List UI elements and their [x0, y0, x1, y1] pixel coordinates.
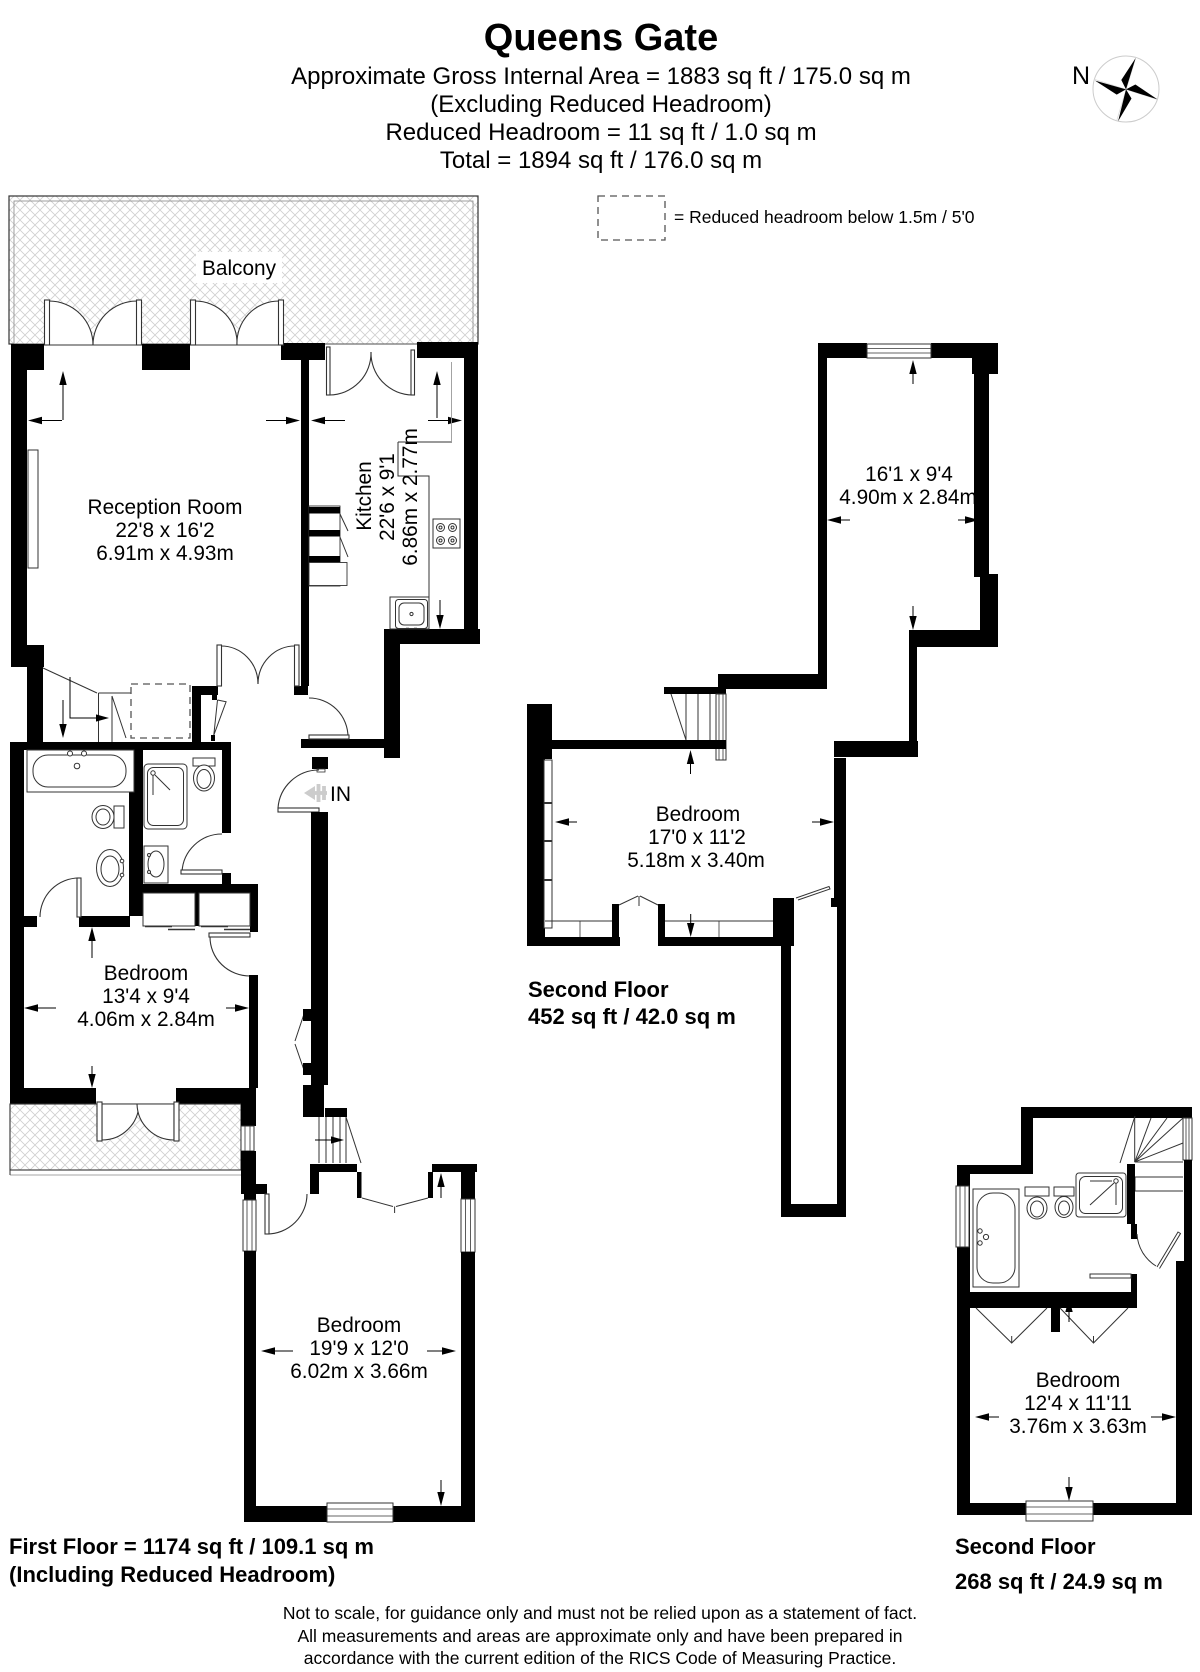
svg-text:6.02m x 3.66m: 6.02m x 3.66m — [290, 1360, 428, 1383]
svg-text:4.90m x 2.84m: 4.90m x 2.84m — [839, 486, 977, 509]
svg-text:19'9 x 12'0: 19'9 x 12'0 — [309, 1337, 408, 1360]
svg-text:4.06m x 2.84m: 4.06m x 2.84m — [77, 1008, 215, 1031]
svg-text:Approximate Gross Internal Are: Approximate Gross Internal Area = 1883 s… — [291, 63, 911, 90]
svg-text:5.18m x 3.40m: 5.18m x 3.40m — [627, 849, 765, 872]
svg-text:452 sq ft / 42.0 sq m: 452 sq ft / 42.0 sq m — [528, 1004, 736, 1029]
svg-text:268 sq ft / 24.9 sq m: 268 sq ft / 24.9 sq m — [955, 1569, 1163, 1594]
svg-text:All measurements and areas are: All measurements and areas are approxima… — [297, 1626, 902, 1646]
svg-text:22'8 x 16'2: 22'8 x 16'2 — [115, 519, 214, 542]
svg-text:6.86m x 2.77m: 6.86m x 2.77m — [399, 428, 422, 566]
svg-text:22'6 x 9'1: 22'6 x 9'1 — [376, 453, 399, 541]
svg-text:(Including Reduced Headroom): (Including Reduced Headroom) — [9, 1562, 335, 1587]
svg-text:17'0 x 11'2: 17'0 x 11'2 — [648, 826, 746, 849]
svg-text:Reception Room: Reception Room — [88, 496, 243, 519]
svg-text:Bedroom: Bedroom — [656, 803, 740, 826]
svg-text:12'4 x 11'11: 12'4 x 11'11 — [1024, 1392, 1132, 1415]
svg-text:Reduced Headroom = 11 sq ft /: Reduced Headroom = 11 sq ft / 1.0 sq m — [385, 119, 816, 146]
svg-text:(Excluding Reduced Headroom): (Excluding Reduced Headroom) — [430, 91, 772, 118]
svg-text:Bedroom: Bedroom — [317, 1314, 401, 1337]
svg-text:3.76m x 3.63m: 3.76m x 3.63m — [1009, 1415, 1147, 1438]
svg-text:Bedroom: Bedroom — [1036, 1369, 1120, 1392]
svg-text:Not to scale, for guidance onl: Not to scale, for guidance only and must… — [283, 1603, 917, 1623]
svg-text:Second Floor: Second Floor — [528, 977, 669, 1002]
svg-text:accordance with the current ed: accordance with the current edition of t… — [304, 1648, 896, 1668]
svg-text:= Reduced headroom below 1.5m: = Reduced headroom below 1.5m / 5'0 — [674, 207, 975, 227]
svg-text:16'1 x 9'4: 16'1 x 9'4 — [865, 463, 953, 486]
svg-text:6.91m x 4.93m: 6.91m x 4.93m — [96, 542, 234, 565]
svg-text:Bedroom: Bedroom — [104, 962, 188, 985]
svg-text:13'4 x 9'4: 13'4 x 9'4 — [102, 985, 190, 1008]
svg-text:First Floor = 1174 sq ft / 109: First Floor = 1174 sq ft / 109.1 sq m — [9, 1534, 374, 1559]
svg-text:Second Floor: Second Floor — [955, 1534, 1096, 1559]
svg-text:Kitchen: Kitchen — [353, 461, 376, 530]
svg-text:Total = 1894 sq ft / 176.0 sq: Total = 1894 sq ft / 176.0 sq m — [440, 147, 762, 174]
svg-text:Queens Gate: Queens Gate — [484, 17, 718, 59]
svg-text:IN: IN — [330, 783, 351, 806]
svg-text:Balcony: Balcony — [202, 257, 277, 280]
svg-text:N: N — [1072, 62, 1090, 90]
